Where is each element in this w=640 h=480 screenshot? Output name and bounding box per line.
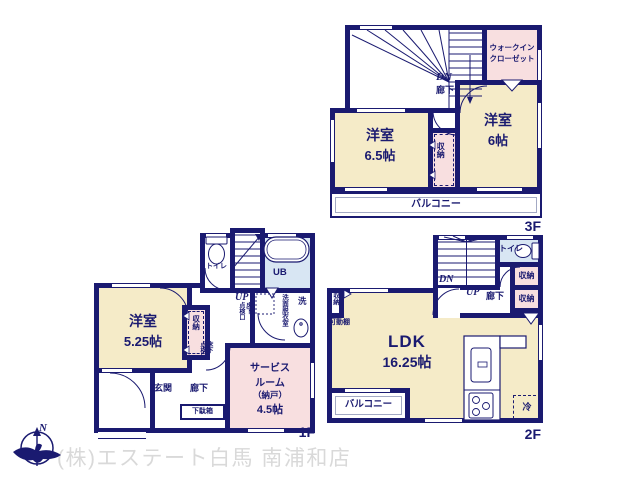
fridge-space: 冷 [513, 395, 541, 419]
hallway-label-2f: 廊下 [486, 291, 504, 301]
wic-line1: ウォークイン [490, 42, 535, 53]
room-size: 6帖 [488, 130, 508, 149]
window [507, 235, 533, 240]
hallway-label-1f: 廊下 [190, 383, 208, 393]
door-patch [433, 288, 460, 318]
window [112, 283, 150, 288]
stairs-dn-label-3f: DN [436, 71, 452, 84]
window [345, 187, 387, 192]
bird-silhouette [13, 444, 61, 463]
entrance-label: 玄関 [154, 383, 172, 393]
closet-3f [428, 128, 460, 192]
room-name: 洋室 [484, 110, 512, 130]
window [357, 108, 405, 113]
plan-2f: 収納 収納 バルコニー 冷 LDK 16.25帖 トイレ 収納 可動棚 廊下 D… [327, 230, 549, 445]
room-name: LDK [388, 332, 426, 352]
service-line: （納戸） [253, 389, 287, 401]
toilet-label-1f: トイレ [206, 263, 227, 271]
closet-label-1f: 収納 [191, 315, 200, 330]
room-name: 洋室 [129, 311, 157, 331]
shoe-cabinet: 下駄箱 [180, 404, 225, 420]
hallway-label-3f: 廊下 [436, 85, 454, 95]
entrance-step [98, 431, 146, 439]
closet-lower-2f: 収納 [510, 285, 543, 313]
window [268, 233, 296, 238]
underfloor-hatch-2: 床下 [205, 341, 212, 353]
window [310, 363, 315, 398]
room-size: 6.5帖 [364, 145, 395, 164]
toilet-label-2f: トイレ [499, 244, 523, 253]
shoe-cabinet-label: 下駄箱 [192, 408, 213, 416]
floor-label-2f: 2F [477, 426, 541, 442]
balcony-3f: バルコニー [330, 192, 542, 218]
window [439, 235, 465, 240]
wic-line2: クローゼット [490, 53, 535, 64]
closet-label-3f: 収納 [436, 142, 445, 158]
window [477, 187, 522, 192]
closet-label: 収納 [519, 294, 535, 303]
window [538, 325, 543, 360]
underfloor-hatch-1: 床下 [244, 302, 251, 314]
service-room-label: サービス ルーム （納戸） 4.5帖 [230, 348, 310, 428]
stairs-dn-label-2f: DN [439, 274, 453, 286]
floor-label-3f: 3F [477, 218, 541, 234]
room-label-6: 洋室 6帖 [465, 110, 531, 148]
closet-label: 収納 [519, 271, 535, 280]
room-size: 5.25帖 [124, 331, 162, 350]
unit-bath-label: UB [273, 268, 287, 279]
compass-icon: N [10, 419, 64, 475]
ldk-label: LDK 16.25帖 [347, 334, 467, 370]
service-line: ルーム [255, 374, 285, 389]
fridge-label: 冷 [522, 402, 531, 412]
plan-3f: バルコニー 洋室 6.5帖 洋室 6帖 ウォークイン クローゼット 収納 DN … [327, 25, 549, 240]
window [425, 418, 462, 423]
balcony-label: バルコニー [332, 393, 405, 418]
closet-left-label: 収納 [331, 292, 338, 305]
balcony-label: バルコニー [332, 194, 540, 216]
window [360, 25, 392, 30]
window [206, 233, 226, 238]
entrance-porch [94, 368, 155, 433]
wic-label: ウォークイン クローゼット [484, 38, 540, 68]
floor-label-1f: 1F [251, 424, 315, 440]
window [350, 288, 388, 293]
room-label-5-25: 洋室 5.25帖 [98, 311, 188, 349]
room-name: 洋室 [366, 125, 394, 145]
underfloor-hatch-2b: 点検口 [198, 341, 205, 359]
underfloor-hatch-1b: 点検口 [237, 302, 244, 320]
service-line: サービス [250, 359, 290, 374]
floorplan-canvas: バルコニー 洋室 6.5帖 洋室 6帖 ウォークイン クローゼット 収納 DN … [0, 0, 640, 480]
movable-shelf-label: 可動棚 [329, 319, 350, 327]
stairs-up-label-2f: UP [466, 287, 479, 299]
company-watermark: (株)エステート白馬 南浦和店 [57, 442, 351, 472]
window [537, 103, 542, 148]
laundry-label: 洗 [298, 297, 307, 307]
unit-bath [260, 233, 315, 293]
balcony-2f: バルコニー [327, 388, 410, 423]
plan-1f: 下駄箱 洋室 5.25帖 サービス ルーム （納戸） 4.5帖 トイレ UB U… [94, 228, 320, 443]
washroom-label: 洗面脱衣室 [280, 294, 287, 327]
room-label-6-5: 洋室 6.5帖 [335, 125, 425, 163]
room-size: 16.25帖 [382, 352, 431, 372]
compass-north-label: N [38, 422, 48, 434]
window [102, 368, 132, 373]
service-line: 4.5帖 [257, 401, 283, 417]
